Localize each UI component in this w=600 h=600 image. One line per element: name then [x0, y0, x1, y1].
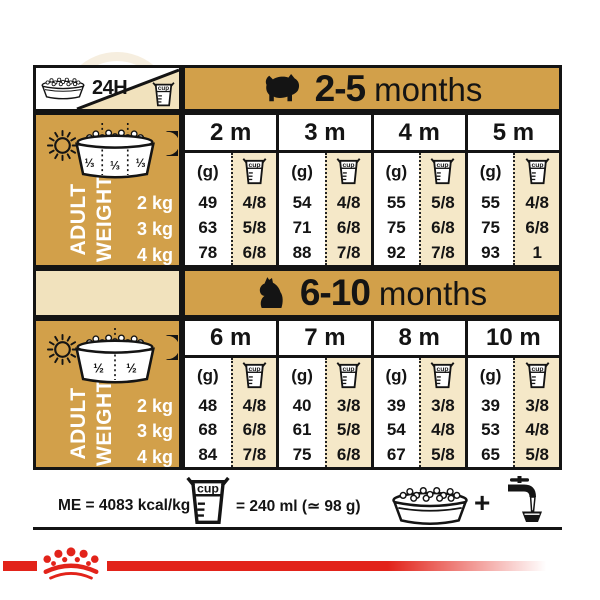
- cups-cell: 5/8: [233, 215, 277, 240]
- cup-icon: [525, 158, 550, 186]
- section-1-title: 2-5 months: [315, 68, 483, 110]
- grams-unit-label: (g): [279, 153, 325, 190]
- month-header: 3 m: [279, 115, 370, 153]
- grams-cell: 88: [279, 240, 325, 265]
- grams-cell: 55: [468, 190, 514, 215]
- month-column: 5 m (g) 55 75 93 4/8 6/8 1: [468, 115, 559, 265]
- weight-label: 2 kg: [93, 190, 173, 216]
- grams-cell: 54: [279, 190, 325, 215]
- cups-cell: 3/8: [327, 394, 371, 418]
- metabolizable-energy-label: ME = 4083 kcal/kg: [58, 497, 190, 515]
- section-1-left-panel: ADULT WEIGHT 2 kg 3 kg 4 kg: [33, 112, 182, 268]
- grams-unit-label: (g): [374, 153, 420, 190]
- month-column: 8 m (g) 39 54 67 3/8 4/8 5/8: [374, 321, 465, 467]
- moon-icon: [160, 335, 178, 360]
- cup-icon: [242, 362, 267, 390]
- grams-cell: 53: [468, 418, 514, 442]
- dog-icon-sitting: [257, 276, 287, 310]
- cups-cell: 6/8: [327, 215, 371, 240]
- cups-cell: 6/8: [233, 418, 277, 442]
- month-header: 7 m: [279, 321, 370, 358]
- month-header: 8 m: [374, 321, 465, 358]
- cups-cell: 5/8: [327, 418, 371, 442]
- grams-cell: 55: [374, 190, 420, 215]
- cups-cell: 3/8: [421, 394, 465, 418]
- month-column: 6 m (g) 48 68 84 4/8 6/8 7/8: [185, 321, 276, 467]
- grams-cell: 68: [185, 418, 231, 442]
- grams-unit-label: (g): [468, 358, 514, 394]
- month-header: 10 m: [468, 321, 559, 358]
- grams-cell: 71: [279, 215, 325, 240]
- grams-cell: 63: [185, 215, 231, 240]
- grams-cell: 48: [185, 394, 231, 418]
- grams-unit-label: (g): [185, 358, 231, 394]
- grams-cell: 39: [374, 394, 420, 418]
- month-column: 2 m (g) 49 63 78 4/8 5/8 6/8: [185, 115, 276, 265]
- section-2-left-panel: ADULT WEIGHT 2 kg 3 kg 4 kg: [33, 318, 182, 470]
- weight-label: 3 kg: [93, 419, 173, 444]
- month-column: 10 m (g) 39 53 65 3/8 4/8 5/8: [468, 321, 559, 467]
- weight-label: 4 kg: [93, 242, 173, 268]
- section-1-band: 2-5 months: [182, 65, 562, 112]
- section-2-title: 6-10 months: [300, 272, 487, 314]
- cup-icon: [430, 158, 455, 186]
- cup-icon: [242, 158, 267, 186]
- grams-cell: 75: [468, 215, 514, 240]
- cups-cell: 1: [515, 240, 559, 265]
- food-bowl-icon-large: [388, 481, 472, 529]
- grams-cell: 54: [374, 418, 420, 442]
- portion-bowl-halves-icon: [70, 328, 160, 390]
- section-2-table: 6 m (g) 48 68 84 4/8 6/8 7/8 7 m: [182, 318, 562, 470]
- month-header: 4 m: [374, 115, 465, 153]
- section-1-suffix: months: [374, 71, 482, 109]
- feeding-guide-panel: 24H 2-5 months ADULT WEIGHT 2 kg 3 kg 4 …: [0, 0, 600, 600]
- grams-cell: 49: [185, 190, 231, 215]
- section-1-range: 2-5: [315, 68, 365, 110]
- daily-ration-cell: 24H: [33, 65, 182, 112]
- cups-cell: 6/8: [515, 215, 559, 240]
- grams-cell: 65: [468, 443, 514, 467]
- measuring-cup-icon: [152, 82, 175, 108]
- cups-cell: 6/8: [233, 240, 277, 265]
- royal-canin-crown-logo: [38, 547, 104, 581]
- grams-cell: 93: [468, 240, 514, 265]
- cups-cell: 4/8: [233, 394, 277, 418]
- cups-cell: 7/8: [233, 443, 277, 467]
- grams-cell: 39: [468, 394, 514, 418]
- cup-icon: [430, 362, 455, 390]
- dog-icon-standing: [262, 73, 302, 104]
- cups-cell: 4/8: [515, 190, 559, 215]
- weight-label: 4 kg: [93, 445, 173, 470]
- grams-cell: 92: [374, 240, 420, 265]
- cups-cell: 4/8: [421, 418, 465, 442]
- water-tap-icon: [498, 476, 542, 530]
- month-header: 6 m: [185, 321, 276, 358]
- grams-cell: 75: [279, 443, 325, 467]
- section-1-table: 2 m (g) 49 63 78 4/8 5/8 6/8 3 m: [182, 112, 562, 268]
- weight-label: 2 kg: [93, 394, 173, 419]
- weight-labels: 2 kg 3 kg 4 kg: [93, 394, 173, 470]
- month-column: 4 m (g) 55 75 92 5/8 6/8 7/8: [374, 115, 465, 265]
- separator-cell: [33, 268, 182, 318]
- grams-cell: 61: [279, 418, 325, 442]
- red-bar-right: [107, 561, 560, 571]
- grams-unit-label: (g): [279, 358, 325, 394]
- cups-cell: 4/8: [233, 190, 277, 215]
- grams-cell: 84: [185, 443, 231, 467]
- month-column: 7 m (g) 40 61 75 3/8 5/8 6/8: [279, 321, 370, 467]
- cup-icon: [336, 362, 361, 390]
- month-header: 2 m: [185, 115, 276, 153]
- cups-cell: 5/8: [421, 443, 465, 467]
- weight-labels: 2 kg 3 kg 4 kg: [93, 190, 173, 268]
- grams-unit-label: (g): [185, 153, 231, 190]
- daily-label: 24H: [92, 77, 127, 100]
- moon-icon: [160, 131, 178, 156]
- cups-cell: 7/8: [327, 240, 371, 265]
- grams-unit-label: (g): [468, 153, 514, 190]
- cups-cell: 4/8: [327, 190, 371, 215]
- cups-cell: 6/8: [421, 215, 465, 240]
- grams-cell: 75: [374, 215, 420, 240]
- grams-cell: 40: [279, 394, 325, 418]
- cup-icon: [525, 362, 550, 390]
- cups-cell: 6/8: [327, 443, 371, 467]
- plus-sign: +: [474, 489, 490, 517]
- cup-equivalence-label: = 240 ml (≃ 98 g): [236, 497, 361, 516]
- weight-label: 3 kg: [93, 216, 173, 242]
- cups-cell: 4/8: [515, 418, 559, 442]
- cups-cell: 5/8: [421, 190, 465, 215]
- month-column: 3 m (g) 54 71 88 4/8 6/8 7/8: [279, 115, 370, 265]
- grams-cell: 67: [374, 443, 420, 467]
- cup-icon: [336, 158, 361, 186]
- section-2-range: 6-10: [300, 272, 370, 314]
- month-header: 5 m: [468, 115, 559, 153]
- grams-cell: 78: [185, 240, 231, 265]
- red-bar-left: [3, 561, 37, 571]
- measuring-cup-icon-large: [186, 476, 230, 528]
- section-2-suffix: months: [379, 275, 487, 313]
- cups-cell: 5/8: [515, 443, 559, 467]
- food-bowl-icon: [40, 74, 86, 102]
- divider-line: [33, 527, 562, 530]
- portion-bowl-thirds-icon: [70, 123, 160, 185]
- section-2-band: 6-10 months: [182, 268, 562, 318]
- cups-cell: 7/8: [421, 240, 465, 265]
- cups-cell: 3/8: [515, 394, 559, 418]
- grams-unit-label: (g): [374, 358, 420, 394]
